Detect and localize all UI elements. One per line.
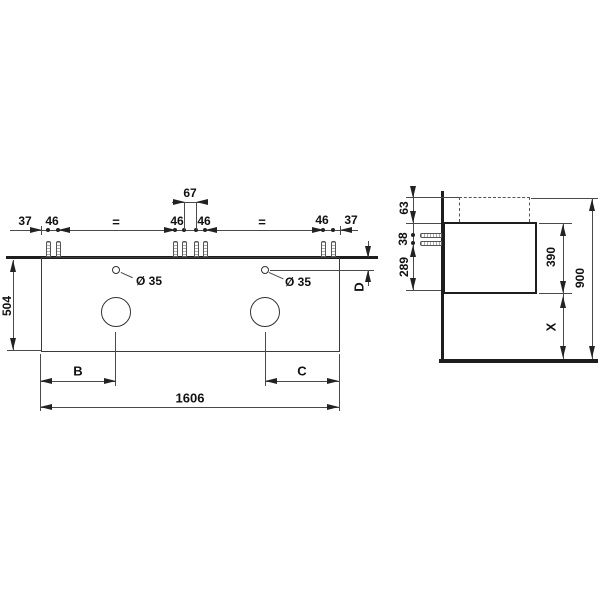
arrowhead [589, 199, 595, 211]
arrowhead [410, 245, 416, 257]
arrowhead [560, 296, 566, 308]
anchor-screw [194, 241, 199, 257]
dim-c-label: C [297, 365, 306, 378]
extension-line [413, 223, 441, 224]
dim-289-label: 289 [398, 257, 410, 277]
mounting-bolt [420, 241, 442, 246]
dim-d-label: D [353, 282, 366, 291]
extension-line [413, 197, 459, 198]
extension-line [7, 350, 42, 351]
extension-line [539, 293, 572, 294]
arrowhead [196, 199, 208, 205]
anchor-screw [46, 241, 51, 257]
arrowhead [560, 224, 566, 236]
dim-b-label: B [73, 365, 82, 378]
arrowhead [365, 246, 371, 258]
dim-900-label: 900 [574, 268, 586, 288]
arrowhead [327, 378, 339, 384]
dim-37-right-label: 37 [344, 214, 357, 226]
screw-center-mark [46, 228, 50, 232]
arrowhead [560, 346, 566, 358]
dim-46-mid-left-label: 46 [170, 215, 183, 227]
arrowhead [104, 378, 116, 384]
dim-1606-label: 1606 [176, 392, 205, 405]
dim-46-right-label: 46 [315, 214, 328, 226]
dim-67-label: 67 [183, 187, 196, 199]
screw-center-mark [321, 228, 325, 232]
screw-center-mark [56, 228, 60, 232]
mounting-bolt [420, 233, 442, 238]
dim-46-left-label: 46 [45, 215, 58, 227]
dimension-line-left-chain [413, 186, 414, 290]
anchor-screw [173, 241, 178, 257]
screw-center-mark [331, 228, 335, 232]
screw-center-mark [203, 228, 207, 232]
arrowhead [327, 404, 339, 410]
bolt-center-mark [411, 233, 415, 237]
dimension-line-900 [592, 198, 593, 359]
dim-equal-right-label: = [258, 216, 266, 229]
anchor-screw [331, 241, 336, 257]
tap-hole-label-right: Ø 35 [285, 276, 311, 288]
anchor-screw [56, 241, 61, 257]
anchor-screw [203, 241, 208, 257]
arrowhead [265, 378, 277, 384]
cabinet-outline-front [41, 257, 340, 352]
arrowhead [410, 278, 416, 290]
basin-hole-circle-right [250, 297, 280, 327]
washbasin-dashed-outline [459, 197, 530, 222]
arrowhead [40, 404, 52, 410]
dimension-line-1606 [40, 407, 339, 408]
extension-line [413, 290, 441, 291]
anchor-screw [182, 241, 187, 257]
extension-line [184, 202, 185, 230]
dim-504-label: 504 [1, 296, 13, 316]
arrowhead [30, 227, 42, 233]
dim-46-mid-right-label: 46 [197, 215, 210, 227]
floor-line [439, 359, 598, 363]
arrowhead [560, 281, 566, 293]
extension-line [339, 354, 340, 411]
cabinet-outline-side [443, 222, 537, 294]
tap-hole-label-left: Ø 35 [136, 275, 162, 287]
dim-equal-left-label: = [112, 216, 120, 229]
dim-63-label: 63 [398, 201, 410, 214]
tap-hole-circle-left [112, 266, 120, 274]
arrowhead [365, 270, 371, 282]
extension-line [539, 223, 572, 224]
extension-line [270, 270, 374, 271]
basin-hole-circle-left [101, 297, 131, 327]
technical-drawing: 37 46 = 67 46 46 = 46 37 Ø 35 Ø 35 504 D [0, 0, 600, 600]
arrowhead [10, 260, 16, 272]
extension-line [531, 198, 598, 199]
arrowhead [10, 338, 16, 350]
arrowhead [589, 346, 595, 358]
dim-37-left-label: 37 [18, 215, 31, 227]
dim-390-label: 390 [545, 247, 557, 267]
anchor-screw [321, 241, 326, 257]
dim-38-label: 38 [397, 232, 409, 245]
arrowhead [340, 227, 352, 233]
dim-x-label: X [545, 323, 558, 332]
arrowhead [40, 378, 52, 384]
screw-center-mark [173, 228, 177, 232]
